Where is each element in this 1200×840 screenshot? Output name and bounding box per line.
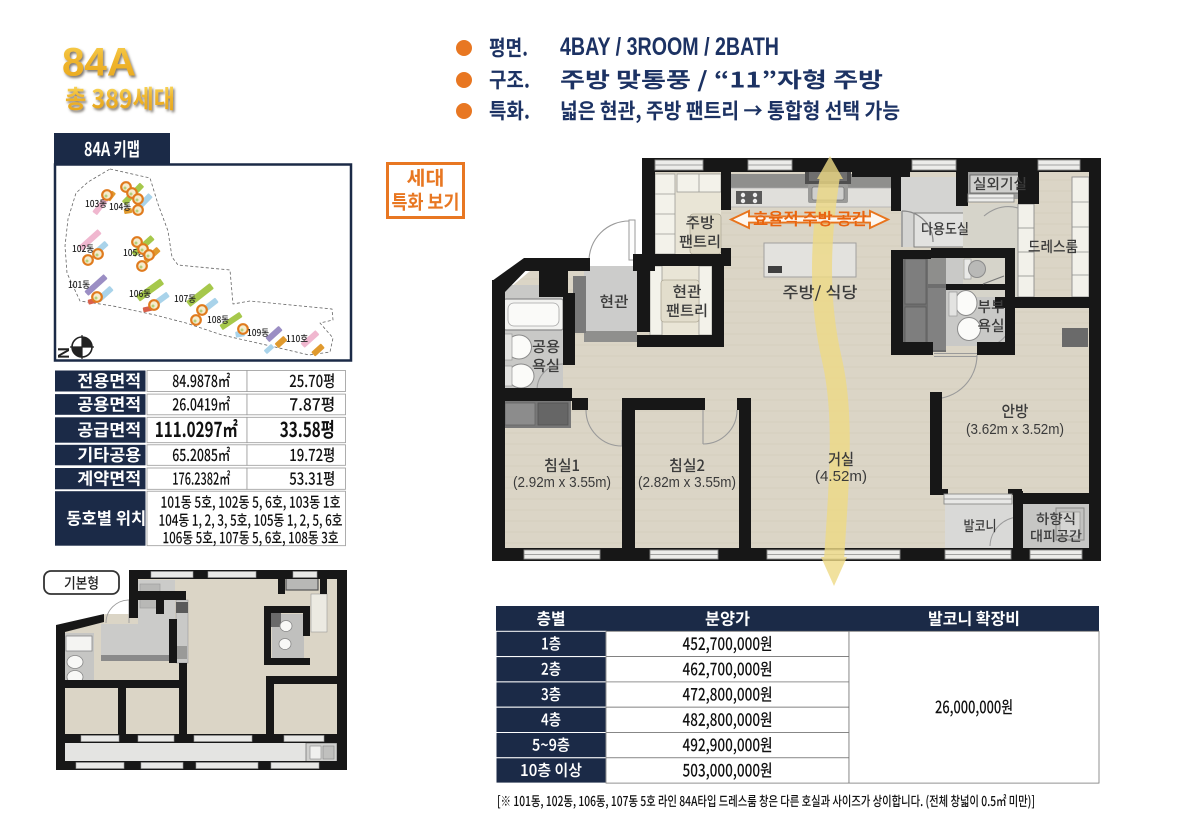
svg-text:(3.62m x 3.52m): (3.62m x 3.52m) — [966, 421, 1064, 438]
svg-text:(2.92m x 3.55m): (2.92m x 3.55m) — [513, 474, 611, 491]
svg-text:N: N — [56, 347, 73, 359]
svg-text:(4.52m): (4.52m) — [815, 468, 867, 485]
svg-text:4BAY / 3ROOM / 2BATH: 4BAY / 3ROOM / 2BATH — [560, 33, 779, 61]
svg-text:84A: 84A — [62, 41, 136, 85]
svg-text:(2.82m x 3.55m): (2.82m x 3.55m) — [638, 474, 736, 491]
